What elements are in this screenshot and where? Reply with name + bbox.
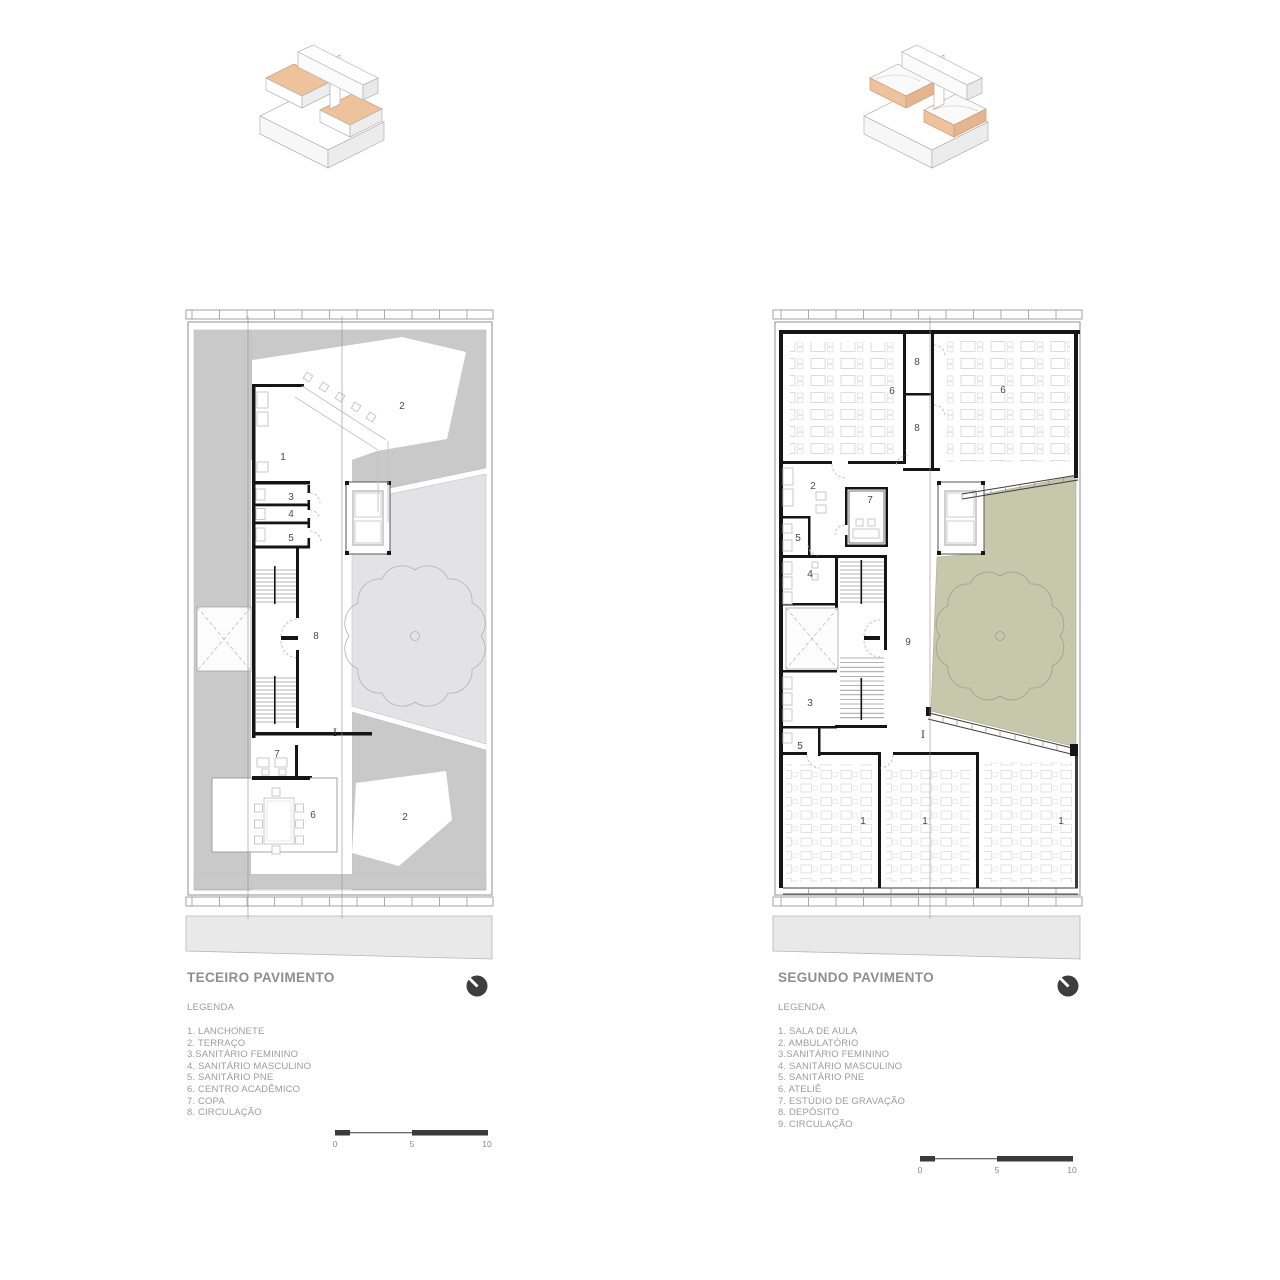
sala-b-desks (886, 768, 970, 882)
scale-bar-left: 0 5 10 (333, 1130, 492, 1149)
floorplan-second-floor: 6 8 8 6 2 7 5 4 9 3 5 1 1 1 I (773, 310, 1082, 959)
sidewalk (186, 916, 492, 959)
label-lanchonete: 1 (280, 452, 286, 463)
scale-5-right: 5 (995, 1165, 1000, 1175)
elevator-shaft-x (786, 608, 838, 669)
scale-0-right: 0 (918, 1165, 923, 1175)
scale-0-left: 0 (333, 1139, 338, 1149)
label-san-masculino-2: 4 (807, 569, 813, 580)
axon-third-floor (260, 45, 384, 168)
label-circulacao: 8 (313, 631, 319, 642)
label-copa: 7 (274, 749, 280, 760)
mullion-strip-bottom-2 (773, 897, 1082, 906)
sala-a-desks (786, 764, 872, 882)
scale-bar-right: 0 5 10 (918, 1156, 1077, 1175)
legend-item: 6. CENTRO ACADÊMICO (187, 1084, 311, 1096)
legend-title-second-floor: LEGENDA (778, 1002, 825, 1013)
label-san-pne-a: 5 (795, 533, 801, 544)
label-atelie-b: 6 (1000, 385, 1006, 396)
label-san-masculino: 4 (288, 509, 294, 520)
label-deposito-b: 8 (914, 423, 920, 434)
legend-item: 5. SANITÁRIO PNE (187, 1072, 311, 1084)
skylight-shaft (197, 607, 251, 671)
atelie-a-desks (790, 342, 894, 454)
label-sala-b: 1 (922, 816, 928, 827)
sheet: 1 2 3 4 5 8 7 6 2 I (0, 0, 1280, 1280)
label-san-feminino: 3 (288, 492, 294, 503)
label-atelie-a: 6 (889, 386, 895, 397)
legend-title-third-floor: LEGENDA (187, 1002, 234, 1013)
label-circulacao-2: 9 (905, 637, 911, 648)
title-second-floor: SEGUNDO PAVIMENTO (778, 970, 934, 985)
label-estudio: 7 (867, 495, 873, 506)
legend-item: 2. AMBULATÓRIO (778, 1038, 905, 1050)
legend-item: 7. ESTÚDIO DE GRAVAÇÃO (778, 1096, 905, 1108)
label-ambulatorio: 2 (810, 481, 816, 492)
scale-10-left: 10 (482, 1139, 492, 1149)
legend-item: 9. CIRCULAÇÃO (778, 1119, 905, 1131)
label-sala-a: 1 (860, 816, 866, 827)
legend-item: 6. ATELIÊ (778, 1084, 905, 1096)
legend-item: 4. SANITÁRIO MASCULINO (778, 1061, 905, 1073)
legend-item: 1. SALA DE AULA (778, 1026, 905, 1038)
legend-second-floor: 1. SALA DE AULA 2. AMBULATÓRIO 3.SANITÁR… (778, 1026, 905, 1130)
sidewalk-2 (773, 916, 1080, 959)
label-terraco-lower: 2 (402, 812, 408, 823)
wall-copa-top (252, 732, 372, 736)
legend-item: 8. DEPÓSITO (778, 1107, 905, 1119)
legend-item: 7. COPA (187, 1096, 311, 1108)
north-arrow-left (467, 976, 488, 997)
legend-item: 3.SANITÁRIO FEMININO (778, 1049, 905, 1061)
floorplan-third-floor: 1 2 3 4 5 8 7 6 2 I (186, 310, 493, 959)
title-third-floor: TECEIRO PAVIMENTO (187, 970, 335, 985)
legend-item: 2. TERRAÇO (187, 1038, 311, 1050)
legend-item: 1. LANCHONETE (187, 1026, 311, 1038)
elevator-box (345, 481, 391, 555)
label-san-pne: 5 (288, 533, 294, 544)
mullion-strip-top (186, 310, 493, 319)
label-san-feminino-2: 3 (807, 698, 813, 709)
section-marker-left: I (333, 728, 337, 739)
label-sala-c: 1 (1058, 816, 1064, 827)
label-san-pne-b: 5 (797, 741, 803, 752)
mullion-strip-bottom (186, 897, 493, 906)
section-marker-right: I (921, 730, 925, 741)
label-centro-academico: 6 (310, 810, 316, 821)
axon-second-floor (864, 45, 988, 168)
legend-item: 4. SANITÁRIO MASCULINO (187, 1061, 311, 1073)
atelie-b-desks (946, 338, 1070, 462)
scale-10-right: 10 (1067, 1165, 1077, 1175)
legend-item: 8. CIRCULAÇÃO (187, 1107, 311, 1119)
legend-item: 5. SANITÁRIO PNE (778, 1072, 905, 1084)
mullion-strip-top-2 (773, 310, 1082, 319)
legend-third-floor: 1. LANCHONETE 2. TERRAÇO 3.SANITÁRIO FEM… (187, 1026, 311, 1119)
room-centro-academico (212, 777, 337, 854)
legend-item: 3.SANITÁRIO FEMININO (187, 1049, 311, 1061)
label-terraco-upper: 2 (399, 401, 405, 412)
scale-5-left: 5 (410, 1139, 415, 1149)
label-deposito-a: 8 (914, 357, 920, 368)
north-arrow-right (1058, 976, 1079, 997)
elevator-box-2 (937, 481, 985, 555)
